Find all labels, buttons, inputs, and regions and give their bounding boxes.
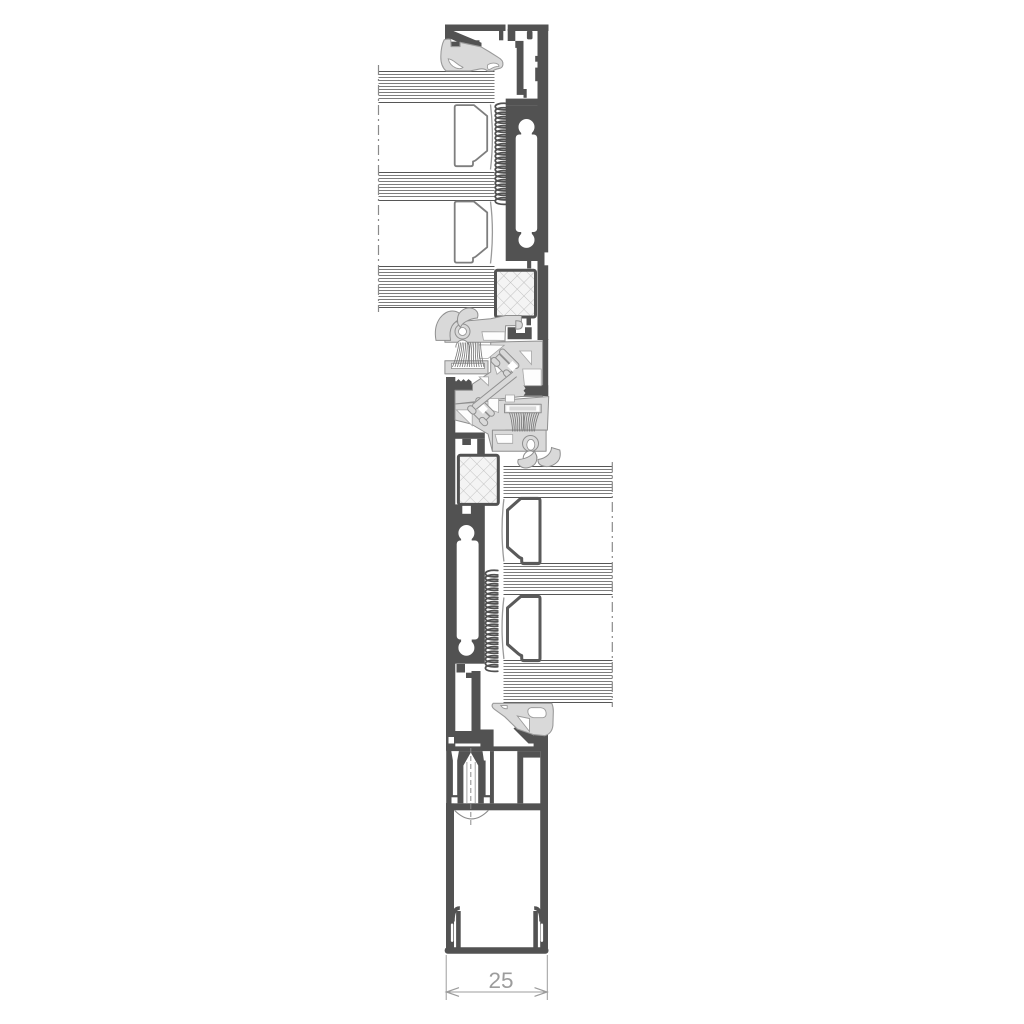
svg-text:25: 25 <box>488 968 513 993</box>
